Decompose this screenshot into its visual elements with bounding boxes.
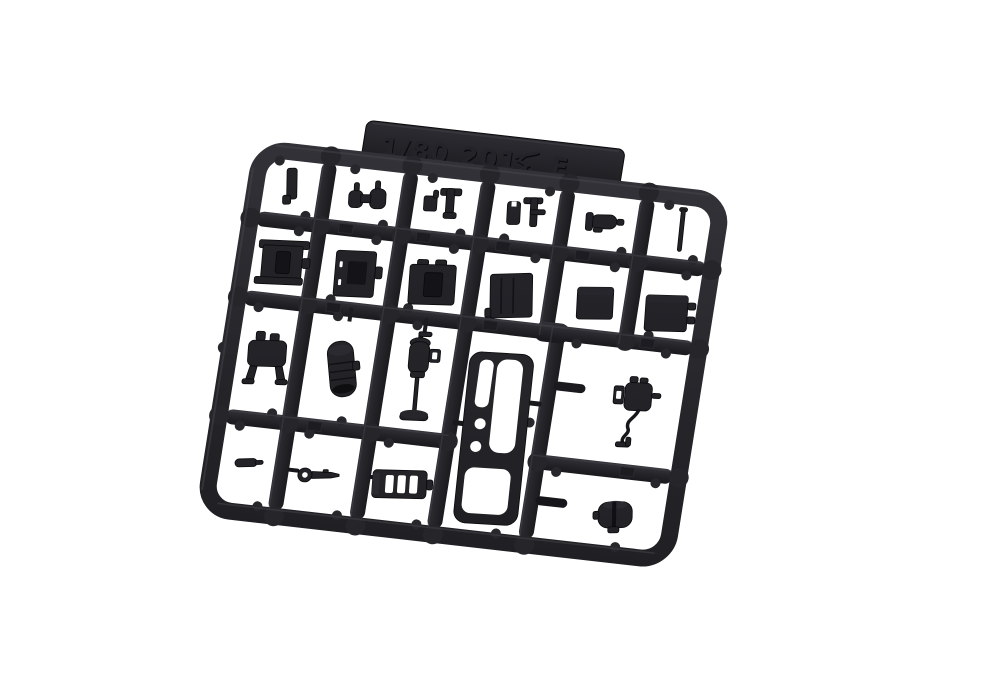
hose-elbow-2: [625, 437, 631, 446]
compressor-bracket-hole: [432, 352, 438, 359]
ribbed-box-slots: [385, 475, 418, 494]
part-equipment-box: [408, 259, 457, 305]
tank-foot-right: [275, 380, 287, 385]
ribbed-box-tab: [426, 480, 433, 490]
part-equipment-box-small: [576, 287, 614, 319]
boxE-top-facet: [577, 287, 614, 295]
small-cylinder-flange: [585, 212, 593, 230]
photo-stage: 1/80 201 E 1/80 201 E: [0, 0, 990, 700]
compressor-top-elbow: [419, 332, 432, 337]
hose-compressor-body: [623, 382, 652, 411]
hose-compressor-cap-1: [630, 376, 639, 382]
tank-foot-left: [242, 379, 254, 384]
small-tank-strap: [612, 502, 616, 528]
small-cylinder-foot: [593, 228, 602, 233]
lever2-arm: [530, 210, 545, 215]
boxB-slot-2: [338, 279, 342, 285]
key-notch: [323, 470, 328, 473]
hose-compressor-plate-hole: [616, 391, 622, 399]
compressor-collar: [410, 371, 425, 378]
reservoir-nub: [352, 361, 360, 371]
ribbed-slot-2: [397, 475, 406, 493]
lever-b-stem: [445, 189, 455, 216]
pillar-body: [287, 168, 298, 199]
part-ribbed-box: [371, 470, 433, 499]
boxD-body: [490, 273, 533, 318]
boxF-tab-2: [687, 317, 696, 324]
boxB-tab: [375, 267, 383, 279]
ribbed-slot-3: [409, 476, 418, 494]
boxF-tab-1: [688, 303, 697, 310]
small-tank-nub: [593, 511, 599, 519]
ribbed-slot-1: [385, 475, 394, 493]
hose-compressor-cap-2: [640, 378, 648, 383]
compressor-body: [408, 341, 431, 374]
boxB-slot-1: [339, 261, 343, 267]
knuckle-bridge: [361, 195, 371, 203]
boxB-door: [346, 261, 368, 286]
sprue-photo: 1/80 201 E 1/80 201 E: [0, 0, 990, 700]
bracket-body: [235, 458, 257, 467]
bracket-tail: [255, 460, 263, 464]
cab-window-bottom: [461, 467, 512, 516]
small-tank-foot: [608, 527, 619, 533]
tank-nozzle-1: [256, 331, 266, 340]
lever-b-foot: [443, 212, 456, 218]
white-background: [0, 0, 990, 700]
lever-a-stub: [433, 190, 439, 198]
small-cylinder-nipple: [617, 219, 624, 225]
boxC-door: [423, 272, 443, 296]
boxD-foot: [485, 308, 491, 317]
boxA-tab: [302, 258, 311, 268]
lever2-notch: [511, 202, 516, 207]
pillar-foot: [283, 195, 291, 204]
hose-compressor-pipe: [652, 393, 661, 398]
small-cylinder-body: [590, 215, 617, 230]
tank-body: [247, 340, 287, 367]
boxA-door: [275, 251, 291, 273]
knuckle-right: [369, 189, 386, 209]
part-equipment-box-grooved: [485, 273, 533, 318]
boxF-top-facet: [646, 295, 689, 303]
